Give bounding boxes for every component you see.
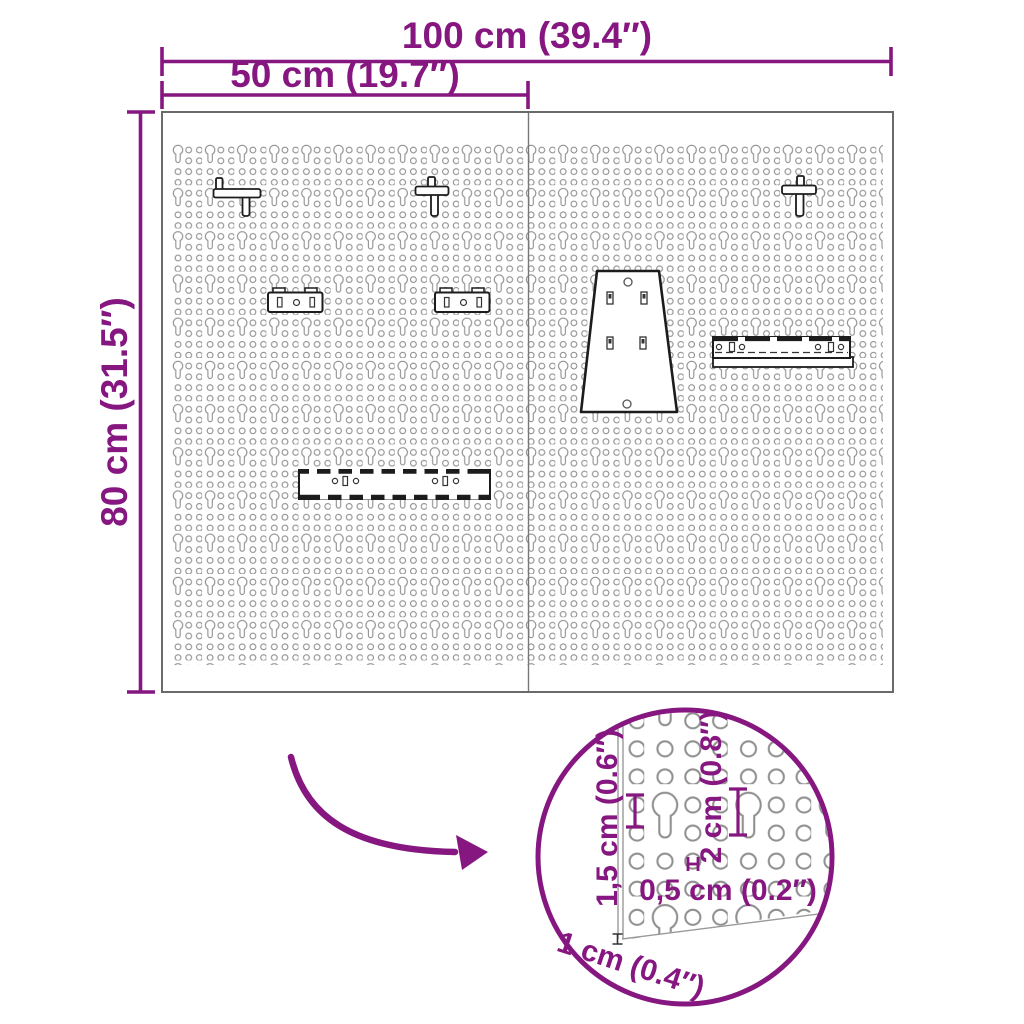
detail-circle: 1,5 cm (0.6″) 2 cm (0.8″) 0,5 cm (0.2″) … bbox=[538, 690, 860, 1004]
bracket-clip-1 bbox=[268, 288, 323, 312]
product-diagram: 100 cm (39.4″) 50 cm (19.7″) 80 cm (31.5… bbox=[0, 0, 1024, 1024]
hole-gap-label: 0,5 cm (0.2″) bbox=[639, 874, 817, 907]
bracket-clip-2 bbox=[435, 288, 490, 312]
detail-zoom-arrow bbox=[291, 757, 488, 870]
tool-rail bbox=[299, 469, 490, 500]
diagram-canvas: 100 cm (39.4″) 50 cm (19.7″) 80 cm (31.5… bbox=[0, 0, 1024, 1024]
height-label: 80 cm (31.5″) bbox=[94, 297, 135, 527]
hole-pitch-label: 1,5 cm (0.6″) bbox=[591, 729, 624, 907]
pegboard-holes bbox=[170, 142, 883, 665]
shelf-bracket bbox=[581, 271, 677, 412]
keyhole-height-label: 2 cm (0.8″) bbox=[695, 711, 728, 864]
wall-rail bbox=[713, 337, 853, 367]
panel-width-label: 50 cm (19.7″) bbox=[230, 54, 460, 95]
total-width-label: 100 cm (39.4″) bbox=[402, 15, 652, 56]
pegboard bbox=[162, 112, 893, 692]
